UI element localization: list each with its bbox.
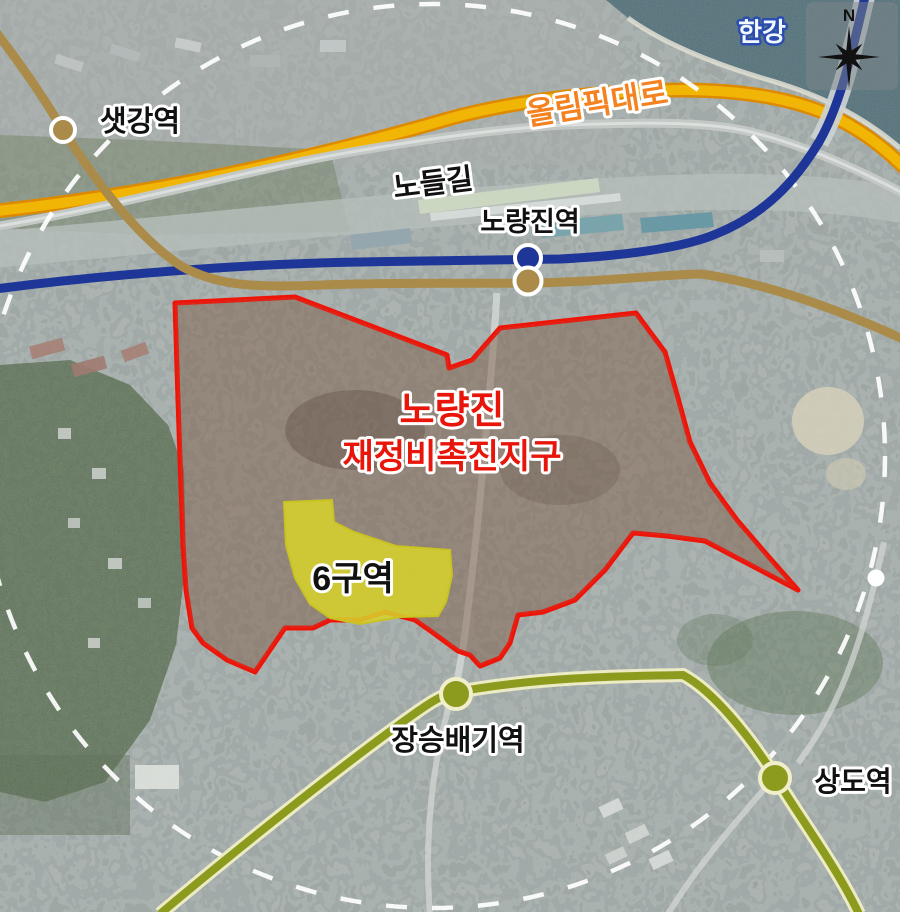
compass-north-label: N <box>843 6 855 25</box>
compass-rose: N <box>806 2 898 90</box>
radius-dot-marker <box>868 570 885 587</box>
zone6-label: 6구역 <box>312 560 393 598</box>
han-river-label: 한강 <box>738 17 786 47</box>
map-canvas: N 한강 샛강역 올림픽대로 노들길 노량진역 노량진 재정비촉진지구 6구역 … <box>0 0 900 912</box>
district-title-line2: 재정비촉진지구 <box>343 438 562 476</box>
station-label-noryangjin: 노량진역 <box>480 207 579 237</box>
station-marker-sangdo <box>760 763 790 793</box>
station-marker-saetgang <box>51 118 75 142</box>
district-title-line1: 노량진 <box>400 390 505 432</box>
station-marker-noryangjin-line9 <box>515 268 542 295</box>
station-label-sangdo: 상도역 <box>814 766 891 797</box>
station-marker-jangseungbaegi <box>441 679 471 709</box>
station-label-saetgang: 샛강역 <box>100 105 180 138</box>
station-label-jangseungbaegi: 장승배기역 <box>391 724 524 757</box>
satellite-map: N 한강 샛강역 올림픽대로 노들길 노량진역 노량진 재정비촉진지구 6구역 … <box>0 0 900 912</box>
